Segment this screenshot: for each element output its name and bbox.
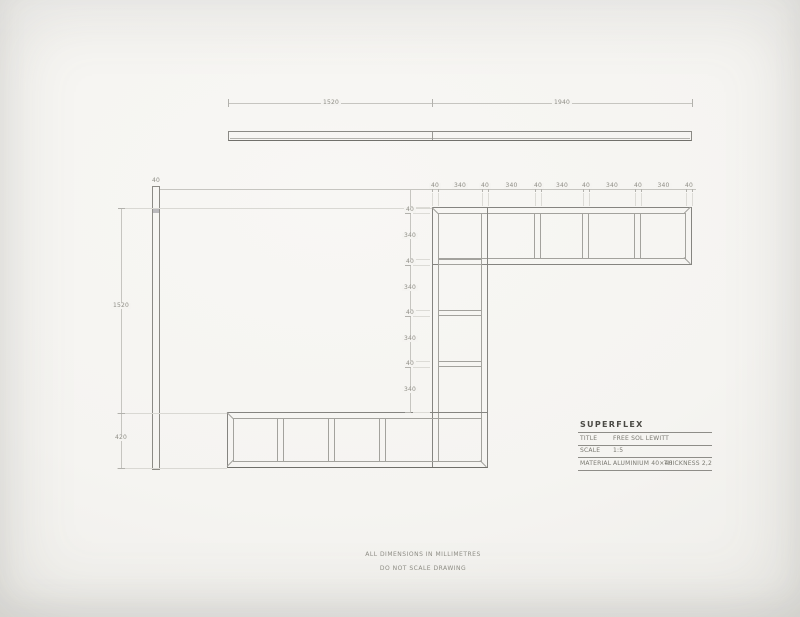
title-block-value: FREE SOL LEWITT	[613, 436, 669, 442]
dim-label: 40	[404, 361, 416, 367]
title-block-artist: SUPERFLEX	[580, 420, 644, 429]
shelf-post	[534, 213, 541, 258]
dim-label: 40	[404, 259, 416, 265]
dim-extension	[413, 412, 430, 413]
left-dim-line	[121, 208, 122, 468]
column-dim-chain-line	[410, 189, 411, 412]
drawing-sheet: 1520 1940 40 1520 420 40	[0, 0, 800, 617]
dim-tick	[405, 213, 411, 214]
guide-line	[117, 468, 227, 469]
title-block-rule	[578, 432, 712, 433]
shelf-dim-chain-line	[160, 189, 696, 190]
dim-extension	[589, 193, 590, 206]
dim-extension	[413, 316, 430, 317]
dim-extension	[413, 213, 430, 214]
shelf-post	[328, 418, 335, 461]
dim-label: 340	[402, 285, 418, 291]
title-block-extra: THICKNESS 2,2	[664, 461, 712, 467]
top-profile-joint	[432, 132, 433, 140]
title-block-rule	[578, 470, 712, 471]
dim-tick	[228, 99, 229, 107]
dim-tick	[692, 99, 693, 107]
dim-label: 340	[402, 387, 418, 393]
guide-line	[117, 413, 227, 414]
dim-label: 40	[429, 183, 441, 189]
dim-label: 340	[655, 183, 671, 189]
title-block-value: 1:5	[613, 448, 623, 454]
dim-extension	[535, 193, 536, 206]
dim-label: 340	[402, 336, 418, 342]
dim-extension	[641, 193, 642, 206]
left-profile-bar	[152, 186, 160, 470]
title-block-label: MATERIAL	[580, 461, 611, 467]
dim-label-left-lower: 420	[113, 435, 129, 441]
dim-label: 40	[683, 183, 695, 189]
title-block-label: TITLE	[580, 436, 597, 442]
dim-tick	[432, 99, 433, 107]
dim-tick	[118, 208, 125, 209]
dim-label: 40	[580, 183, 592, 189]
dim-extension	[432, 193, 433, 206]
dim-extension	[413, 367, 430, 368]
dim-extension	[438, 193, 439, 206]
dim-extension	[635, 193, 636, 206]
guide-line	[121, 208, 432, 209]
column-rung	[438, 361, 482, 367]
dim-extension	[541, 193, 542, 206]
dim-tick	[405, 265, 411, 266]
dim-tick	[118, 468, 125, 469]
title-block-rule	[578, 457, 712, 458]
dim-label: 340	[402, 233, 418, 239]
dim-tick	[405, 367, 411, 368]
dim-label: 40	[404, 310, 416, 316]
shelf-post	[379, 418, 386, 461]
dim-label-top-left: 1520	[321, 100, 341, 106]
dim-label: 340	[452, 183, 468, 189]
title-block-label: SCALE	[580, 448, 600, 454]
dim-label: 40	[404, 207, 416, 213]
bottom-shelf-inner	[233, 418, 482, 462]
sheet-note: DO NOT SCALE DRAWING	[380, 565, 466, 572]
top-profile-bar	[228, 131, 692, 141]
dim-extension	[488, 193, 489, 206]
dim-label: 340	[503, 183, 519, 189]
dim-extension	[692, 193, 693, 206]
top-dim-line	[228, 103, 692, 104]
dim-label: 340	[554, 183, 570, 189]
dim-label-top-right: 1940	[552, 100, 572, 106]
top-profile-inner-line	[230, 138, 690, 139]
dim-label-leftbar-width: 40	[150, 178, 162, 184]
column-rung	[438, 259, 482, 265]
dim-label: 340	[604, 183, 620, 189]
dim-extension	[413, 265, 430, 266]
dim-extension	[686, 193, 687, 206]
dim-label-left-upper: 1520	[111, 303, 131, 309]
dim-label: 40	[532, 183, 544, 189]
shelf-post	[277, 418, 284, 461]
dim-tick	[405, 412, 411, 413]
shelf-post	[634, 213, 641, 258]
title-block-rule	[578, 445, 712, 446]
dim-label: 40	[479, 183, 491, 189]
sheet-note: ALL DIMENSIONS IN MILLIMETRES	[365, 551, 481, 558]
shelf-post	[582, 213, 589, 258]
dim-extension	[482, 193, 483, 206]
dim-extension	[583, 193, 584, 206]
dim-tick	[118, 413, 125, 414]
column-rung	[438, 310, 482, 316]
dim-tick	[405, 316, 411, 317]
dim-label: 40	[632, 183, 644, 189]
